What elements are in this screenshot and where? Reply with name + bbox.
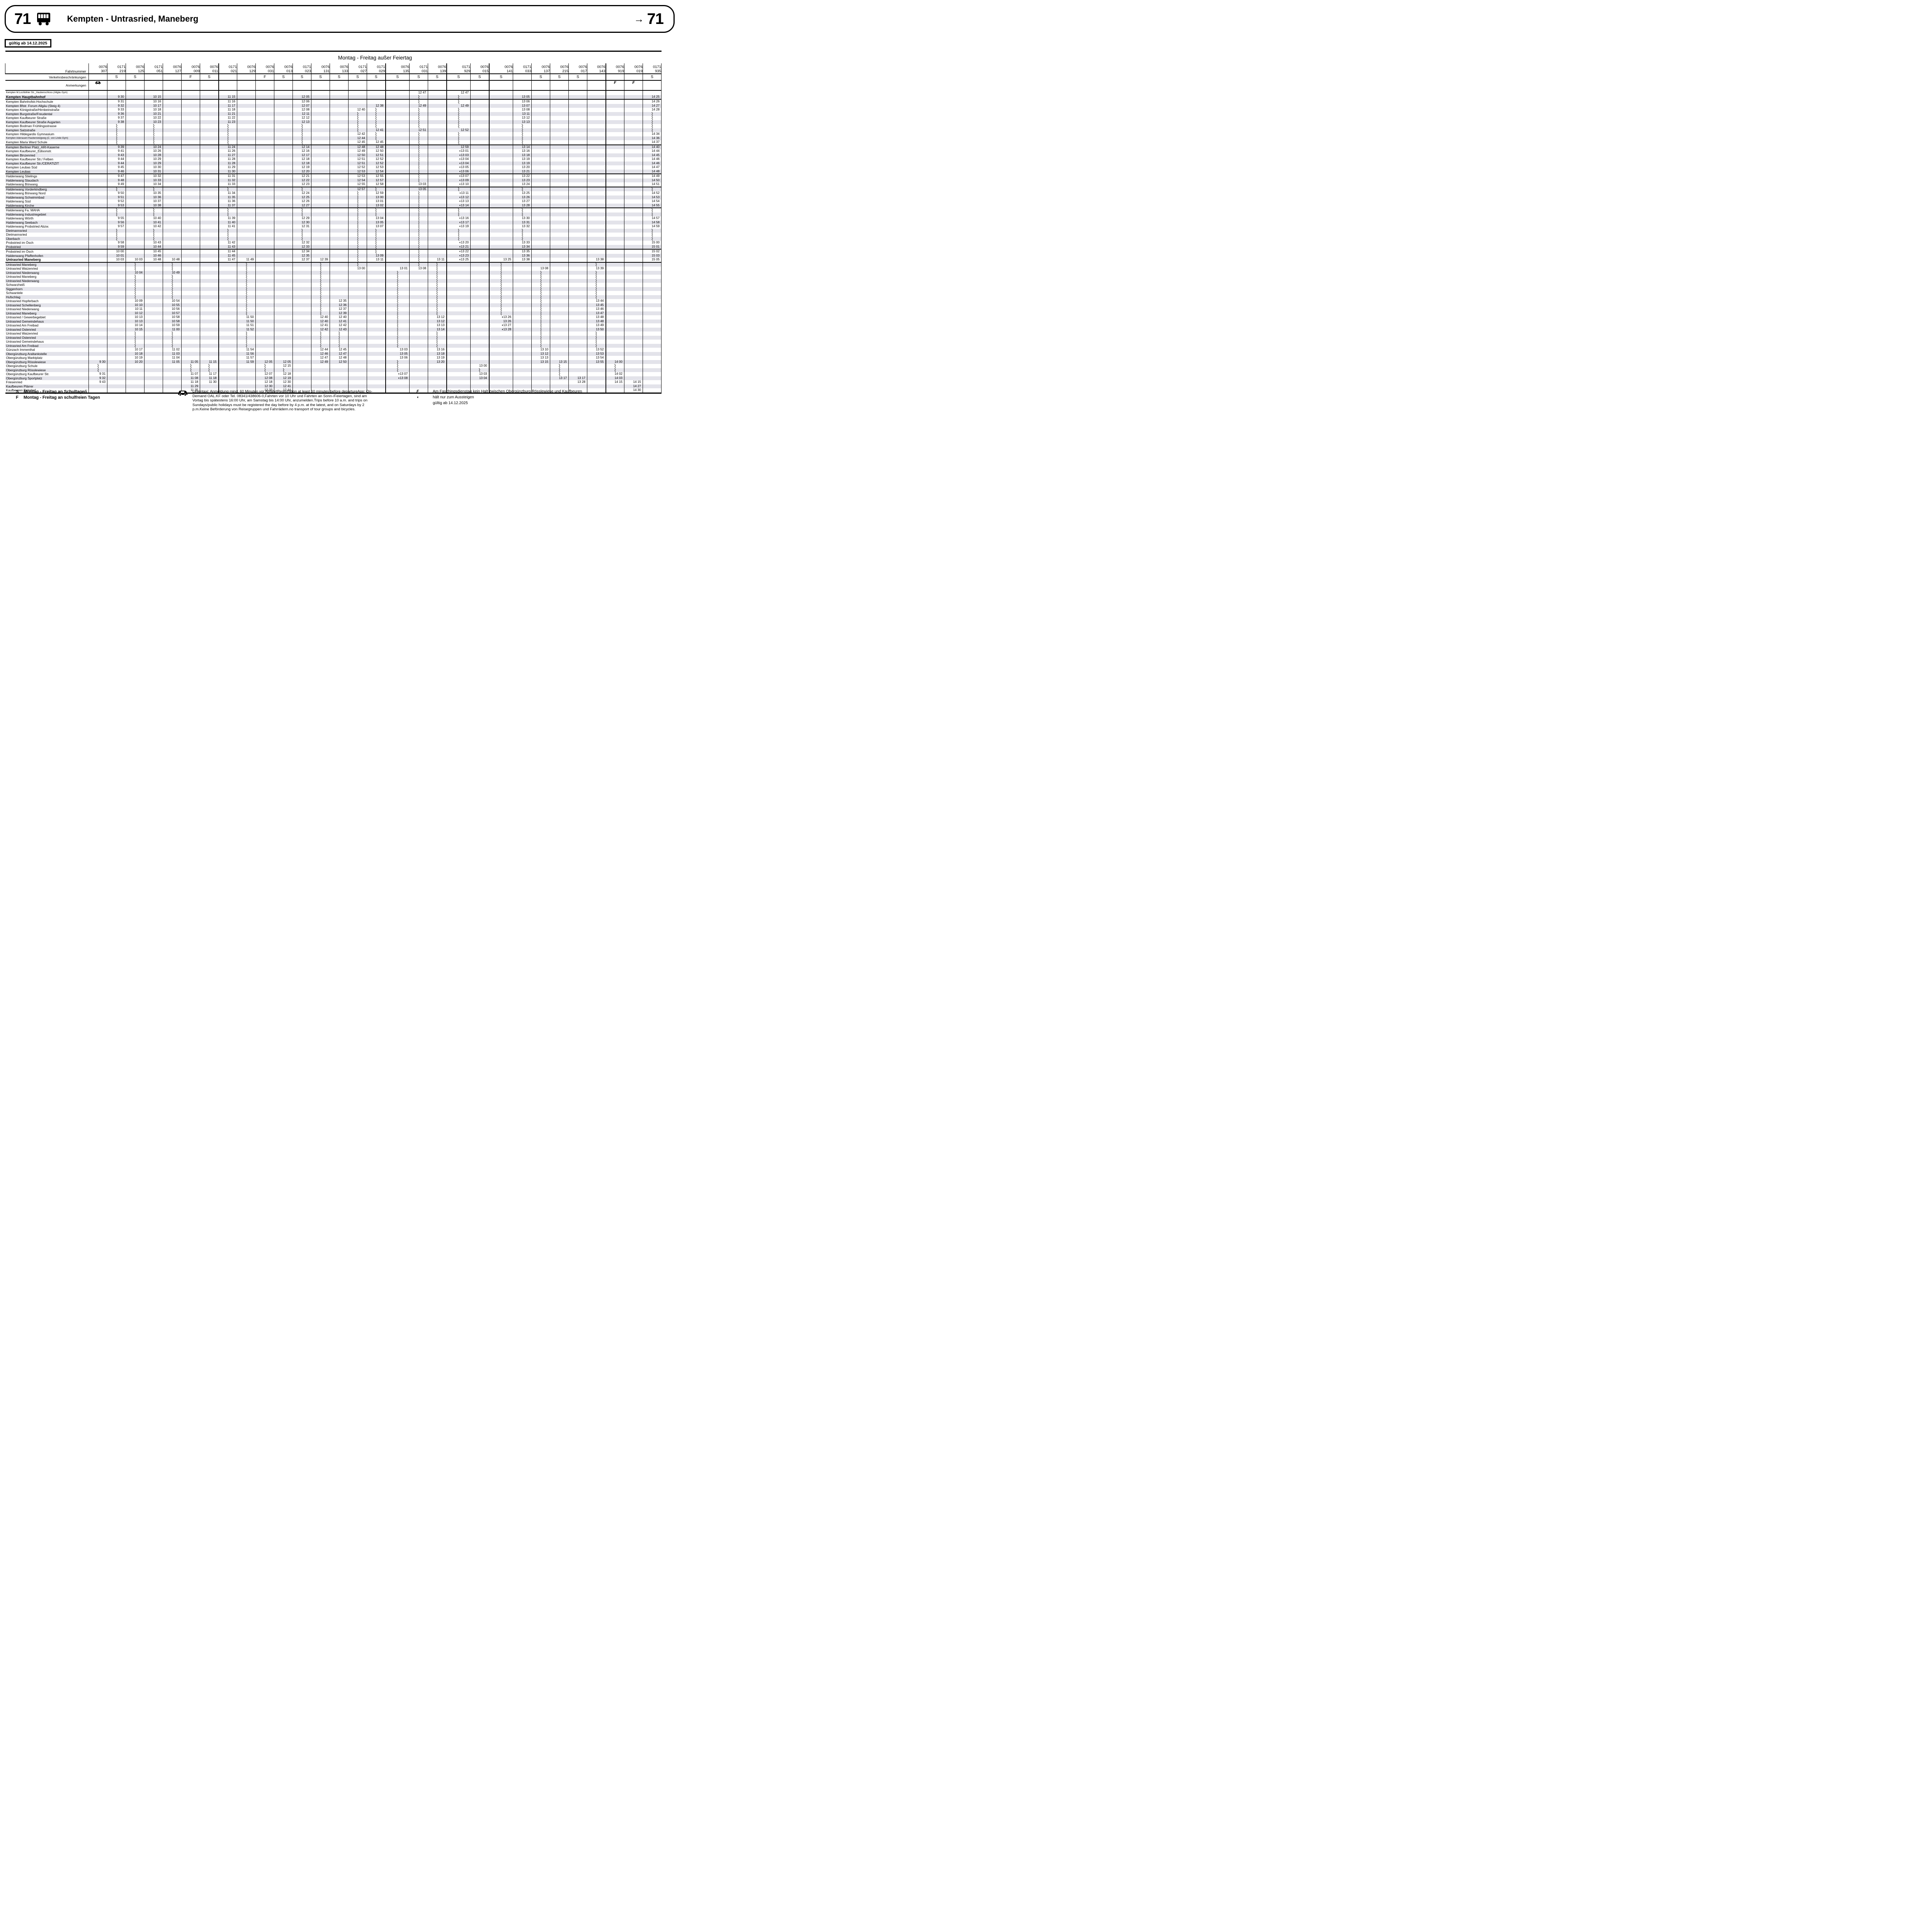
empty-cell: [274, 254, 293, 258]
empty-cell: [182, 254, 200, 258]
empty-cell: [367, 291, 386, 295]
time-cell: 10 28: [145, 153, 163, 158]
empty-cell: [386, 384, 410, 389]
time-cell: 14 46: [643, 157, 662, 161]
empty-cell: [89, 191, 107, 195]
station-name: Haldenwang Börwang: [5, 182, 89, 187]
skip-stop-cell: [643, 208, 662, 212]
station-row: Kempten Hildegardis Gymnasium12 4214 34: [5, 132, 662, 136]
wavy-line-icon: [521, 128, 524, 133]
station-name: Kempten Leubas: [5, 170, 89, 174]
empty-cell: [386, 191, 410, 195]
station-name: Kempten Maria Ward Schule: [5, 140, 89, 145]
empty-cell: [330, 187, 349, 192]
time-cell: 13 15: [550, 360, 569, 364]
empty-cell: [471, 283, 489, 287]
empty-cell: [89, 221, 107, 225]
empty-cell: [532, 165, 550, 170]
station-name: Kempten Kaufbeurer Straße Augarten: [5, 120, 89, 124]
empty-cell: [550, 149, 569, 153]
empty-cell: [163, 104, 182, 108]
empty-cell: [606, 191, 624, 195]
skip-stop-cell: [293, 208, 311, 212]
empty-cell: [89, 161, 107, 166]
empty-cell: [624, 140, 643, 145]
empty-cell: [410, 368, 428, 372]
empty-cell: [293, 90, 311, 95]
empty-cell: [256, 340, 274, 344]
skip-stop-cell: [587, 291, 606, 295]
skip-stop-cell: [107, 124, 126, 128]
empty-cell: [643, 279, 662, 283]
empty-cell: [624, 311, 643, 316]
empty-cell: [293, 303, 311, 308]
time-cell: 11 49: [237, 258, 256, 262]
empty-cell: [200, 145, 219, 150]
time-cell: ◖13 14: [447, 204, 471, 208]
skip-stop-cell: [145, 124, 163, 128]
time-cell: 13 48: [587, 315, 606, 320]
trip-number: 0076013: [274, 63, 293, 74]
time-cell: 13 46: [587, 307, 606, 311]
station-row: Haldenwang Börwang Nord9 5010 3511 3412 …: [5, 191, 662, 195]
time-cell: 10 36: [145, 195, 163, 200]
empty-cell: [89, 157, 107, 161]
empty-cell: [386, 161, 410, 166]
empty-cell: [587, 124, 606, 128]
time-cell: 10 59: [163, 323, 182, 328]
station-name: Obergünzburg Rösslewiese: [5, 368, 89, 372]
empty-cell: [513, 368, 532, 372]
empty-cell: [182, 299, 200, 303]
wavy-line-icon: [595, 279, 597, 283]
empty-cell: [513, 271, 532, 275]
skip-stop-cell: [386, 364, 410, 368]
empty-cell: [532, 108, 550, 112]
wavy-line-icon: [282, 368, 285, 372]
empty-cell: [145, 352, 163, 356]
empty-cell: [569, 267, 587, 271]
empty-cell: [428, 384, 447, 389]
empty-cell: [532, 112, 550, 116]
empty-cell: [569, 258, 587, 262]
empty-cell: [163, 145, 182, 150]
time-cell: 11 39: [219, 216, 237, 221]
wavy-line-icon: [457, 112, 460, 116]
empty-cell: [330, 90, 349, 95]
empty-cell: [513, 311, 532, 316]
empty-cell: [606, 204, 624, 208]
empty-cell: [471, 99, 489, 104]
wavy-line-icon: [540, 299, 542, 303]
empty-cell: [624, 271, 643, 275]
time-cell: 13 26: [513, 195, 532, 200]
wavy-line-icon: [436, 283, 438, 287]
empty-cell: [550, 182, 569, 187]
empty-cell: [200, 241, 219, 245]
empty-cell: [624, 145, 643, 150]
time-cell: 10 38: [145, 204, 163, 208]
empty-cell: [471, 295, 489, 299]
empty-cell: [532, 364, 550, 368]
time-cell: 12 47: [330, 352, 349, 356]
empty-cell: [256, 275, 274, 279]
wavy-line-icon: [116, 229, 118, 233]
empty-cell: [471, 120, 489, 124]
empty-cell: [200, 262, 219, 267]
empty-cell: [330, 216, 349, 221]
wavy-line-icon: [396, 271, 399, 275]
time-cell: 12 08: [293, 108, 311, 112]
empty-cell: [200, 291, 219, 295]
wavy-line-icon: [208, 364, 210, 368]
skip-stop-cell: [532, 295, 550, 299]
empty-cell: [624, 153, 643, 158]
empty-cell: [606, 195, 624, 200]
empty-cell: [447, 287, 471, 291]
time-cell: 11 05: [163, 360, 182, 364]
empty-cell: [587, 380, 606, 384]
empty-cell: [643, 90, 662, 95]
wavy-line-icon: [540, 311, 542, 316]
empty-cell: [606, 356, 624, 360]
empty-cell: [274, 303, 293, 308]
empty-cell: [489, 161, 513, 166]
skip-stop-cell: [606, 368, 624, 372]
empty-cell: [293, 376, 311, 381]
skip-stop-cell: [587, 283, 606, 287]
empty-cell: [569, 237, 587, 241]
empty-cell: [219, 267, 237, 271]
empty-cell: [643, 275, 662, 279]
empty-cell: [163, 132, 182, 136]
empty-cell: [587, 233, 606, 237]
time-cell: 13 55: [587, 360, 606, 364]
empty-cell: [330, 104, 349, 108]
time-cell: 11 50: [237, 320, 256, 324]
station-row: Untrasried Gemeindehaus10 1310 5811 5012…: [5, 320, 662, 324]
time-cell: 12 24: [293, 191, 311, 195]
skip-stop-cell: [410, 233, 428, 237]
empty-cell: [256, 331, 274, 336]
empty-cell: [569, 149, 587, 153]
empty-cell: [550, 95, 569, 100]
skip-stop-cell: [163, 295, 182, 299]
wavy-line-icon: [436, 311, 438, 316]
empty-cell: [624, 208, 643, 212]
empty-cell: [349, 104, 367, 108]
empty-cell: [532, 95, 550, 100]
empty-cell: [219, 303, 237, 308]
empty-cell: [311, 254, 330, 258]
wavy-line-icon: [301, 124, 303, 128]
empty-cell: [256, 145, 274, 150]
wavy-line-icon: [396, 320, 399, 324]
skip-stop-cell: [410, 136, 428, 141]
time-cell: 14 45: [643, 153, 662, 158]
wavy-line-icon: [264, 364, 266, 368]
empty-cell: [587, 224, 606, 229]
time-cell: 12 53: [349, 170, 367, 174]
wavy-line-icon: [245, 271, 248, 275]
time-cell: ◖13 09: [447, 178, 471, 183]
empty-cell: [471, 249, 489, 254]
station-name: Haldenwang Vorderkindberg: [5, 187, 89, 192]
legend-text: Montag - Freitag an Schultagen: [24, 389, 87, 394]
time-cell: 12 50: [367, 149, 386, 153]
skip-stop-cell: [126, 262, 145, 267]
empty-cell: [163, 229, 182, 233]
empty-cell: [126, 136, 145, 141]
empty-cell: [447, 372, 471, 376]
empty-cell: [293, 262, 311, 267]
time-cell: 12 55: [349, 182, 367, 187]
empty-cell: [126, 195, 145, 200]
empty-cell: [330, 376, 349, 381]
empty-cell: [367, 279, 386, 283]
wavy-line-icon: [301, 237, 303, 241]
skip-stop-cell: [428, 303, 447, 308]
empty-cell: [126, 237, 145, 241]
empty-cell: [624, 99, 643, 104]
empty-cell: [256, 195, 274, 200]
time-cell: 11 00: [163, 328, 182, 332]
empty-cell: [513, 364, 532, 368]
empty-cell: [624, 295, 643, 299]
empty-cell: [182, 241, 200, 245]
wavy-line-icon: [320, 287, 322, 291]
empty-cell: [569, 372, 587, 376]
direction-route-number: 71: [647, 10, 664, 28]
skip-stop-cell: [428, 336, 447, 340]
empty-cell: [349, 271, 367, 275]
empty-cell: [606, 320, 624, 324]
empty-cell: [569, 275, 587, 279]
empty-cell: [367, 307, 386, 311]
time-cell: 10 04: [126, 271, 145, 275]
wavy-line-icon: [171, 267, 173, 271]
empty-cell: [163, 128, 182, 133]
station-name: Untrasried Waizenried: [5, 267, 89, 271]
empty-cell: [274, 229, 293, 233]
empty-cell: [550, 307, 569, 311]
empty-cell: [569, 356, 587, 360]
empty-cell: [330, 182, 349, 187]
empty-cell: [643, 352, 662, 356]
skip-stop-cell: [489, 283, 513, 287]
skip-stop-cell: [311, 262, 330, 267]
skip-stop-cell: [428, 287, 447, 291]
empty-cell: [643, 262, 662, 267]
empty-cell: [471, 157, 489, 161]
time-cell: 12 47: [311, 356, 330, 360]
wavy-line-icon: [558, 372, 561, 376]
empty-cell: [489, 170, 513, 174]
empty-cell: [311, 116, 330, 120]
empty-cell: [182, 271, 200, 275]
time-cell: 12 07: [293, 104, 311, 108]
empty-cell: [606, 258, 624, 262]
empty-cell: [606, 161, 624, 166]
annotation-cell: [145, 80, 163, 90]
time-cell: 12 45: [330, 348, 349, 352]
empty-cell: [532, 90, 550, 95]
empty-cell: [311, 376, 330, 381]
time-cell: 10 00: [107, 249, 126, 254]
time-cell: 10 23: [145, 120, 163, 124]
empty-cell: [569, 132, 587, 136]
empty-cell: [489, 104, 513, 108]
empty-cell: [532, 128, 550, 133]
empty-cell: [274, 315, 293, 320]
trip-number: 0076139: [428, 63, 447, 74]
empty-cell: [532, 258, 550, 262]
empty-cell: [606, 323, 624, 328]
empty-cell: [219, 320, 237, 324]
time-cell: 14 49: [643, 174, 662, 178]
empty-cell: [274, 348, 293, 352]
empty-cell: [643, 380, 662, 384]
empty-cell: [200, 287, 219, 291]
empty-cell: [513, 291, 532, 295]
empty-cell: [550, 174, 569, 178]
trip-number: 0171935: [643, 63, 662, 74]
empty-cell: [532, 145, 550, 150]
wavy-line-icon: [227, 208, 229, 212]
skip-stop-cell: [410, 212, 428, 217]
empty-cell: [569, 262, 587, 267]
empty-cell: [145, 90, 163, 95]
empty-cell: [550, 128, 569, 133]
time-cell: 11 04: [163, 356, 182, 360]
empty-cell: [489, 112, 513, 116]
wavy-line-icon: [227, 140, 229, 144]
empty-cell: [219, 356, 237, 360]
legend-row: FMontag - Freitag an schulfreien Tagen: [5, 395, 177, 400]
empty-cell: [624, 199, 643, 204]
time-cell: 13 36: [513, 254, 532, 258]
empty-cell: [587, 165, 606, 170]
empty-cell: [311, 132, 330, 136]
trip-number: 0171033: [513, 63, 532, 74]
empty-cell: [274, 182, 293, 187]
empty-cell: [145, 368, 163, 372]
station-row: Haldenwang Fa. MAHA: [5, 208, 662, 212]
empty-cell: [200, 320, 219, 324]
empty-cell: [89, 336, 107, 340]
empty-cell: [513, 267, 532, 271]
wavy-line-icon: [418, 116, 420, 120]
annotation-cell: [182, 80, 200, 90]
empty-cell: [569, 116, 587, 120]
skip-stop-cell: [145, 187, 163, 192]
time-cell: 13 07: [513, 104, 532, 108]
empty-cell: [606, 145, 624, 150]
station-row: Untrasried Niederwang10 0410 49: [5, 271, 662, 275]
time-cell: 14 15: [624, 380, 643, 384]
skip-stop-cell: [410, 249, 428, 254]
restriction-code: [163, 74, 182, 80]
empty-cell: [182, 153, 200, 158]
skip-stop-cell: [532, 307, 550, 311]
empty-cell: [293, 295, 311, 299]
legend-symbol: F: [5, 395, 24, 400]
empty-cell: [293, 336, 311, 340]
empty-cell: [513, 352, 532, 356]
empty-cell: [428, 376, 447, 381]
empty-cell: [532, 149, 550, 153]
time-cell: 9 31: [107, 99, 126, 104]
empty-cell: [624, 258, 643, 262]
time-cell: 12 51: [410, 128, 428, 133]
empty-cell: [606, 249, 624, 254]
time-cell: ◖13 08: [386, 376, 410, 381]
empty-cell: [367, 364, 386, 368]
skip-stop-cell: [237, 283, 256, 287]
skip-stop-cell: [513, 132, 532, 136]
time-cell: 11 27: [219, 153, 237, 158]
skip-stop-cell: [349, 241, 367, 245]
empty-cell: [145, 340, 163, 344]
empty-cell: [624, 165, 643, 170]
empty-cell: [237, 199, 256, 204]
wavy-line-icon: [357, 224, 359, 229]
empty-cell: [200, 124, 219, 128]
empty-cell: [349, 283, 367, 287]
empty-cell: [182, 199, 200, 204]
empty-cell: [489, 199, 513, 204]
empty-cell: [163, 208, 182, 212]
wavy-line-icon: [320, 331, 322, 336]
wavy-line-icon: [320, 295, 322, 299]
wavy-line-icon: [134, 283, 136, 287]
empty-cell: [513, 90, 532, 95]
empty-cell: [447, 320, 471, 324]
empty-cell: [274, 233, 293, 237]
empty-cell: [330, 153, 349, 158]
empty-cell: [367, 271, 386, 275]
empty-cell: [550, 108, 569, 112]
skip-stop-cell: [311, 344, 330, 348]
empty-cell: [182, 128, 200, 133]
time-cell: 12 41: [330, 320, 349, 324]
empty-cell: [274, 157, 293, 161]
empty-cell: [643, 267, 662, 271]
empty-cell: [89, 174, 107, 178]
empty-cell: [532, 191, 550, 195]
skip-stop-cell: [200, 368, 219, 372]
wavy-line-icon: [320, 275, 322, 279]
skip-stop-cell: [311, 307, 330, 311]
empty-cell: [145, 331, 163, 336]
empty-cell: [624, 303, 643, 308]
annotation-cell: [349, 80, 367, 90]
station-name: Kempten Bahnhofstr.Hochschule: [5, 99, 89, 104]
time-cell: 13 04: [471, 376, 489, 381]
empty-cell: [606, 165, 624, 170]
empty-cell: [643, 320, 662, 324]
empty-cell: [513, 299, 532, 303]
time-cell: 12 08: [256, 376, 274, 381]
station-name: Haldenwang Seebach: [5, 221, 89, 225]
empty-cell: [624, 112, 643, 116]
wavy-line-icon: [116, 128, 118, 133]
time-cell: 11 50: [237, 315, 256, 320]
time-cell: 10 29: [145, 161, 163, 166]
empty-cell: [410, 348, 428, 352]
empty-cell: [349, 340, 367, 344]
wavy-line-icon: [134, 344, 136, 348]
